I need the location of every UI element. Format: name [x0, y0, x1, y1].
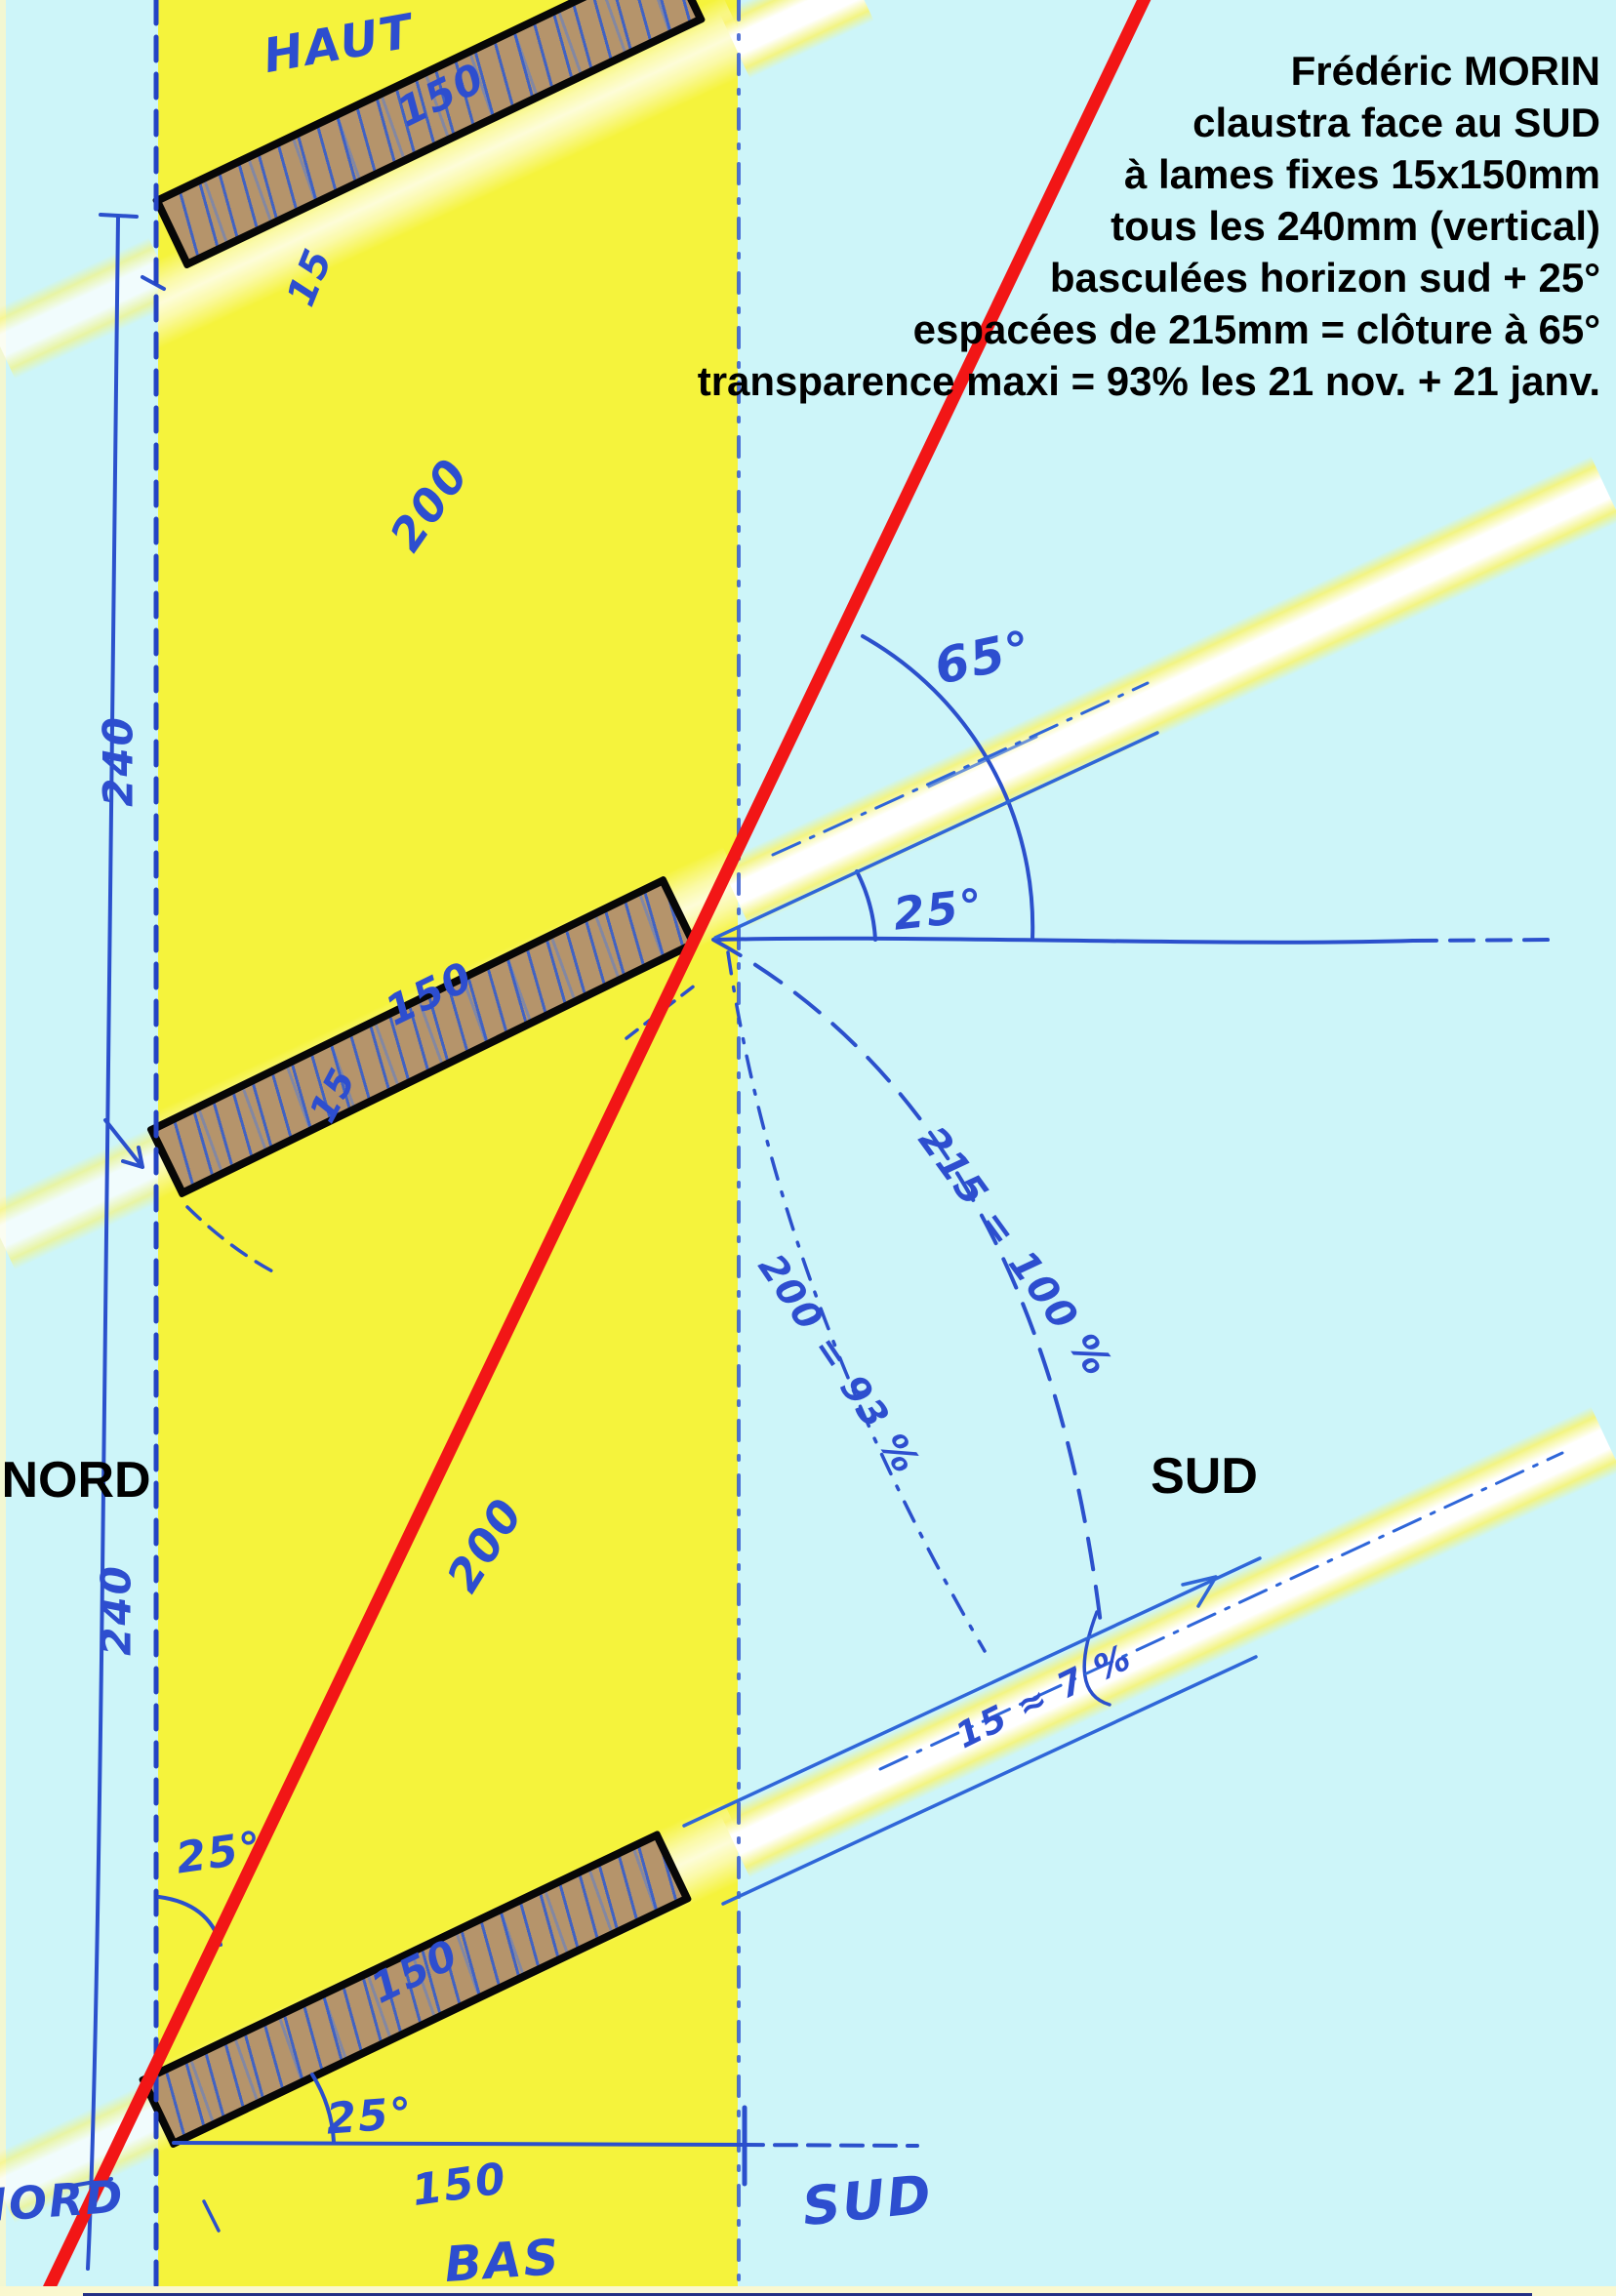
vertical-dimension-line — [88, 217, 118, 2269]
dimension-top-tick — [101, 215, 137, 217]
baseline-bottom-dashed — [742, 2145, 917, 2146]
arc-spacing-200 — [728, 952, 985, 1651]
dim-240-lower: 240 — [93, 1564, 141, 1656]
beam-middle-centerline — [773, 683, 1148, 855]
top-slat-corner-hook — [142, 277, 164, 289]
title-line-6: espacées de 215mm = clôture à 65° — [698, 303, 1600, 355]
label-sud-printed: SUD — [1151, 1447, 1258, 1506]
title-line-1: Frédéric MORIN — [698, 45, 1600, 97]
dim-240-upper: 240 — [95, 715, 142, 807]
beam-middle-upper-edge — [929, 737, 1036, 786]
claustra-sketch-page: Frédéric MORIN claustra face au SUD à la… — [0, 0, 1616, 2296]
baseline-bottom — [174, 2143, 742, 2145]
beam-bottom-lower-edge — [723, 1657, 1256, 1904]
title-line-3: à lames fixes 15x150mm — [698, 148, 1600, 200]
label-nord-hand: NORD — [0, 2170, 126, 2234]
label-nord-printed: NORD — [1, 1451, 150, 1510]
title-line-2: claustra face au SUD — [698, 97, 1600, 148]
label-bas: BAS — [443, 2229, 563, 2293]
title-block: Frédéric MORIN claustra face au SUD à la… — [698, 45, 1600, 407]
title-line-4: tous les 240mm (vertical) — [698, 200, 1600, 252]
horizon-line-middle-dashed — [1413, 940, 1555, 941]
beam-bottom-upper-edge — [684, 1558, 1260, 1826]
bottom-slat-tick — [204, 2201, 219, 2231]
angle-25-bottom: 25° — [325, 2088, 416, 2144]
title-line-5: basculées horizon sud + 25° — [698, 252, 1600, 303]
horizon-line-middle — [715, 939, 1413, 943]
dash-middle-corner — [187, 1207, 280, 1275]
angle-25-middle: 25° — [891, 878, 987, 940]
title-line-7: transparence maxi = 93% les 21 nov. + 21… — [698, 355, 1600, 407]
dimension-middle-arrow — [105, 1120, 142, 1167]
arc-25deg-middle — [857, 871, 875, 940]
